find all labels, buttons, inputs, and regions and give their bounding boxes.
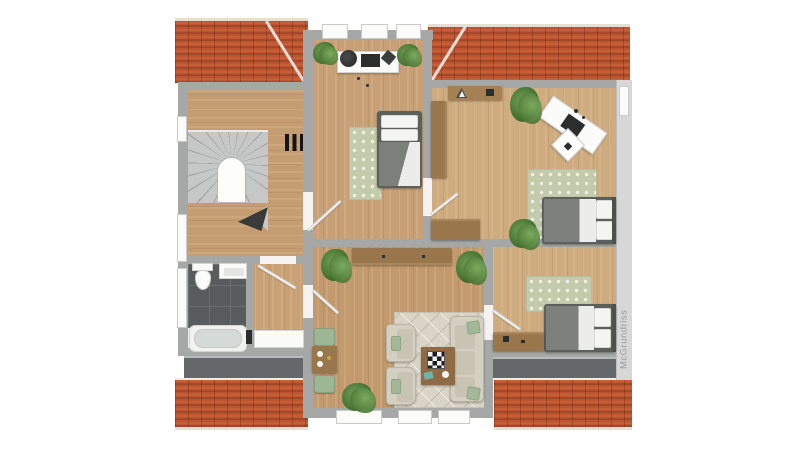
chess-board bbox=[427, 351, 445, 369]
armchair bbox=[386, 367, 416, 405]
towel-radiator bbox=[246, 330, 252, 344]
coffee-table bbox=[421, 347, 455, 385]
potted-plant bbox=[509, 219, 537, 248]
sideboard-knob bbox=[382, 255, 385, 258]
pillow bbox=[594, 308, 611, 327]
armchair bbox=[386, 324, 416, 362]
bathtub bbox=[189, 325, 247, 352]
throw-pillow bbox=[466, 320, 481, 335]
flat-roof-left bbox=[184, 356, 303, 378]
wall-living-left bbox=[303, 247, 313, 285]
dining-table bbox=[312, 346, 337, 373]
headboard bbox=[612, 197, 616, 244]
watermark: McGrundriss bbox=[614, 296, 634, 382]
potted-plant bbox=[321, 249, 349, 281]
sink bbox=[219, 263, 247, 279]
pillow bbox=[381, 129, 418, 141]
potted-plant bbox=[456, 251, 484, 283]
floor-plan: McGrundriss bbox=[0, 0, 800, 450]
plate bbox=[317, 361, 323, 367]
flat-roof-right bbox=[493, 357, 616, 378]
potted-plant bbox=[342, 383, 372, 411]
floor-decor bbox=[366, 84, 369, 87]
stair-void-arch bbox=[217, 157, 246, 203]
pillow bbox=[381, 115, 418, 128]
throw-pillow bbox=[391, 379, 401, 394]
pillow bbox=[596, 221, 613, 240]
roof-bottom-left bbox=[175, 378, 308, 430]
wall-hall-office bbox=[303, 30, 313, 192]
window-left bbox=[177, 214, 187, 262]
window-bottom bbox=[438, 410, 470, 424]
throw-pillow bbox=[466, 386, 481, 401]
sink-basin bbox=[224, 268, 244, 276]
dresser bbox=[431, 219, 480, 240]
door-opening bbox=[423, 178, 432, 216]
door-opening bbox=[260, 256, 296, 264]
shelf-decor bbox=[486, 89, 494, 96]
window-left bbox=[177, 268, 187, 328]
table-decor bbox=[327, 356, 331, 360]
potted-plant bbox=[397, 44, 419, 66]
duvet bbox=[544, 199, 596, 242]
potted-plant bbox=[313, 42, 335, 64]
throw-pillow bbox=[391, 336, 401, 351]
floor-decor bbox=[574, 109, 578, 113]
table-decor bbox=[423, 371, 433, 380]
potted-plant bbox=[510, 87, 539, 122]
floor-decor bbox=[582, 116, 585, 119]
single-bed bbox=[377, 111, 422, 188]
sideboard-decor bbox=[503, 336, 509, 342]
floor-decor bbox=[357, 77, 360, 80]
cabinet bbox=[254, 330, 304, 348]
wardrobe bbox=[431, 101, 447, 178]
double-bed bbox=[542, 197, 616, 244]
window-top bbox=[396, 24, 421, 39]
bathtub-basin bbox=[194, 329, 242, 348]
roof-bottom-right bbox=[494, 378, 632, 430]
plate bbox=[317, 351, 323, 357]
monitor bbox=[361, 54, 380, 67]
wall-post bbox=[296, 256, 304, 264]
table-decor bbox=[442, 371, 449, 378]
seat-cushion bbox=[455, 351, 475, 375]
window-top bbox=[361, 24, 388, 39]
door-opening bbox=[303, 285, 313, 318]
sofa bbox=[450, 316, 484, 402]
wall-top-left bbox=[178, 82, 308, 90]
sideboard-knob bbox=[422, 255, 425, 258]
roof-top-left bbox=[175, 18, 308, 85]
lamp-center bbox=[564, 142, 572, 150]
radiator-icon bbox=[285, 134, 304, 151]
sideboard bbox=[352, 248, 452, 265]
pillow bbox=[596, 200, 613, 219]
double-bed bbox=[544, 304, 616, 352]
window-left bbox=[177, 116, 187, 142]
duvet bbox=[379, 142, 420, 186]
pillow bbox=[594, 329, 611, 348]
sideboard-knob bbox=[521, 340, 525, 343]
window-right bbox=[619, 86, 629, 116]
dining-chair bbox=[314, 375, 335, 393]
duvet bbox=[546, 306, 594, 350]
window-bottom bbox=[398, 410, 432, 424]
sideboard bbox=[493, 332, 544, 351]
desk-chair bbox=[340, 50, 357, 67]
dining-chair bbox=[314, 328, 335, 346]
window-top bbox=[322, 24, 348, 39]
